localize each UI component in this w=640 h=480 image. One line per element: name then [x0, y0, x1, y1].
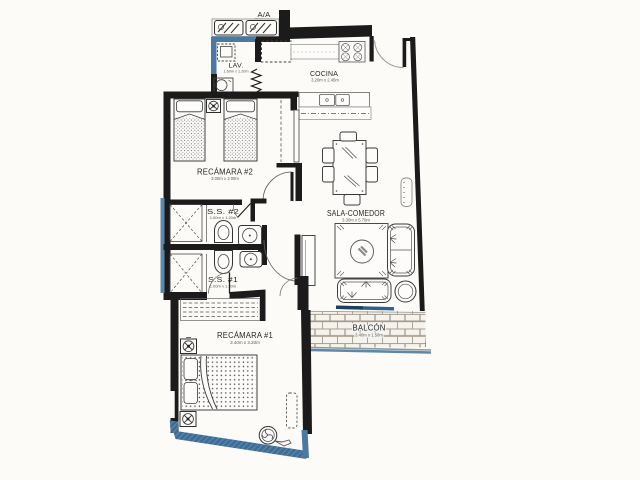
svg-text:1.60m x 1.20m: 1.60m x 1.20m: [223, 70, 248, 74]
svg-text:BALCÓN: BALCÓN: [353, 324, 386, 333]
svg-text:RECÁMARA #1: RECÁMARA #1: [217, 330, 273, 340]
svg-text:3.40m x 3.20m: 3.40m x 3.20m: [230, 340, 260, 345]
svg-text:3.30m x 5.70m: 3.30m x 5.70m: [342, 218, 370, 223]
svg-text:3.40m x 1.50m: 3.40m x 1.50m: [355, 333, 383, 338]
svg-text:3.00m x 3.00m: 3.00m x 3.00m: [211, 176, 239, 181]
svg-text:1.60m x 1.20m: 1.60m x 1.20m: [210, 215, 237, 220]
svg-text:A/A: A/A: [258, 12, 271, 19]
svg-text:LAV.: LAV.: [229, 63, 244, 70]
svg-text:3.20m x 2.45m: 3.20m x 2.45m: [311, 78, 339, 83]
svg-text:1.60m x 1.20m: 1.60m x 1.20m: [210, 284, 237, 289]
svg-text:RECÁMARA #2: RECÁMARA #2: [197, 167, 253, 177]
